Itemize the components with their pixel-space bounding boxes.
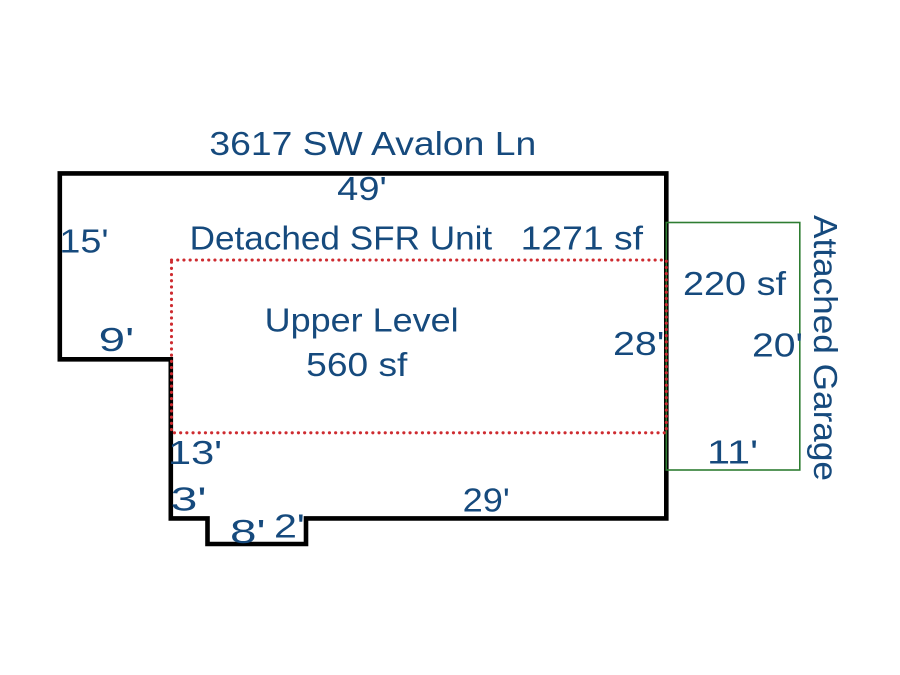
svg-text:29': 29' [463, 481, 510, 518]
svg-text:3617 SW Avalon Ln: 3617 SW Avalon Ln [209, 125, 536, 162]
svg-text:Attached Garage: Attached Garage [807, 215, 844, 481]
svg-text:560 sf: 560 sf [306, 346, 408, 383]
svg-text:8': 8' [230, 513, 266, 550]
svg-text:49': 49' [337, 170, 387, 207]
svg-text:9': 9' [99, 321, 135, 358]
svg-text:3': 3' [171, 481, 207, 518]
svg-text:28': 28' [613, 325, 664, 362]
svg-text:20': 20' [752, 327, 803, 364]
svg-text:1271 sf: 1271 sf [521, 219, 644, 256]
svg-text:Upper Level: Upper Level [265, 302, 459, 339]
svg-text:Detached SFR Unit: Detached SFR Unit [190, 219, 493, 256]
svg-text:220 sf: 220 sf [683, 265, 787, 302]
svg-text:13': 13' [168, 434, 222, 471]
svg-text:2': 2' [274, 508, 305, 545]
svg-text:11': 11' [707, 433, 758, 470]
svg-text:15': 15' [59, 223, 108, 260]
